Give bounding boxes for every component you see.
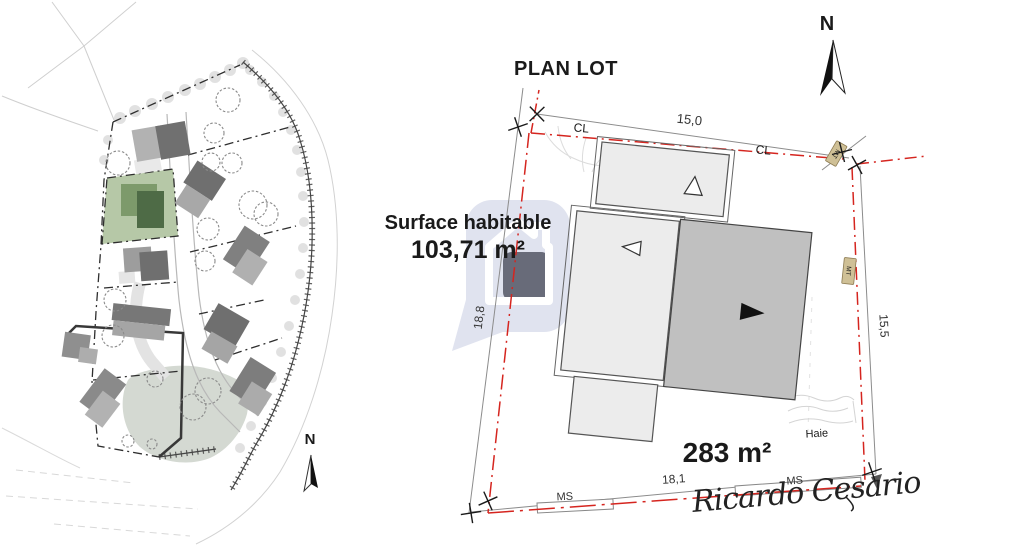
signature: Ricardo Cesario: [690, 465, 922, 520]
garage: [596, 142, 730, 217]
house-dark-wing: [664, 219, 812, 399]
tree: [222, 153, 242, 173]
landscaped-area: [123, 366, 248, 463]
north-arrow-plan: N: [820, 13, 845, 96]
tree: [239, 191, 267, 219]
plan-canvas: N: [0, 0, 1024, 558]
page-title: PLAN LOT: [514, 58, 618, 80]
north-arrow-icon: [311, 455, 318, 488]
house: [110, 303, 171, 341]
surface-label: Surface habitable: [385, 212, 552, 234]
mt-marker: MT: [842, 257, 857, 284]
haie-label: Haie: [805, 427, 828, 440]
cl-label-1: CL: [573, 120, 590, 135]
signature-text: Ricardo Cesario: [690, 465, 922, 520]
cl-label-2: CL: [755, 142, 772, 157]
survey-cross: [526, 103, 548, 125]
outer-roads: [2, 2, 337, 544]
mt-label-2: MT: [844, 266, 852, 276]
house-main: [561, 211, 680, 381]
survey-cross: [478, 491, 498, 511]
plan-document: N: [0, 0, 1024, 558]
dim-bottom: 18,1: [662, 471, 687, 487]
surface-value: 103,71 m²: [411, 236, 525, 264]
survey-cross: [848, 156, 866, 174]
plan-lot: MT MT CL CL 15,0 18,8 15,5 18,1 MS MS Ha…: [385, 13, 927, 525]
north-label-map: N: [305, 431, 316, 448]
boundary-right: [852, 167, 865, 481]
dim-right: 15,5: [876, 314, 891, 338]
dim-left: 18,8: [471, 305, 488, 330]
extension: [568, 376, 657, 441]
house: [129, 121, 193, 174]
tree: [195, 251, 215, 271]
tree: [122, 435, 134, 447]
tree: [197, 218, 219, 240]
north-arrow-map: N: [304, 431, 318, 491]
tree: [106, 151, 130, 175]
dim-top: 15,0: [676, 111, 703, 129]
ms-label-1: MS: [556, 491, 573, 504]
buildings: [549, 135, 820, 456]
tree: [254, 202, 278, 226]
site-map: N: [2, 2, 337, 544]
tree: [204, 123, 224, 143]
north-arrow-icon: [304, 455, 311, 491]
tree: [216, 88, 240, 112]
boundary-right-ext: [857, 156, 927, 164]
area-label: 283 m²: [683, 437, 772, 468]
house: [117, 245, 169, 283]
hedge-sketch: [786, 395, 856, 423]
house: [171, 161, 226, 220]
house: [195, 303, 252, 364]
north-arrow-icon: [832, 40, 845, 93]
survey-cross: [508, 117, 529, 138]
house: [220, 226, 278, 286]
north-arrow-icon: [820, 40, 833, 96]
north-label-plan: N: [820, 13, 834, 35]
